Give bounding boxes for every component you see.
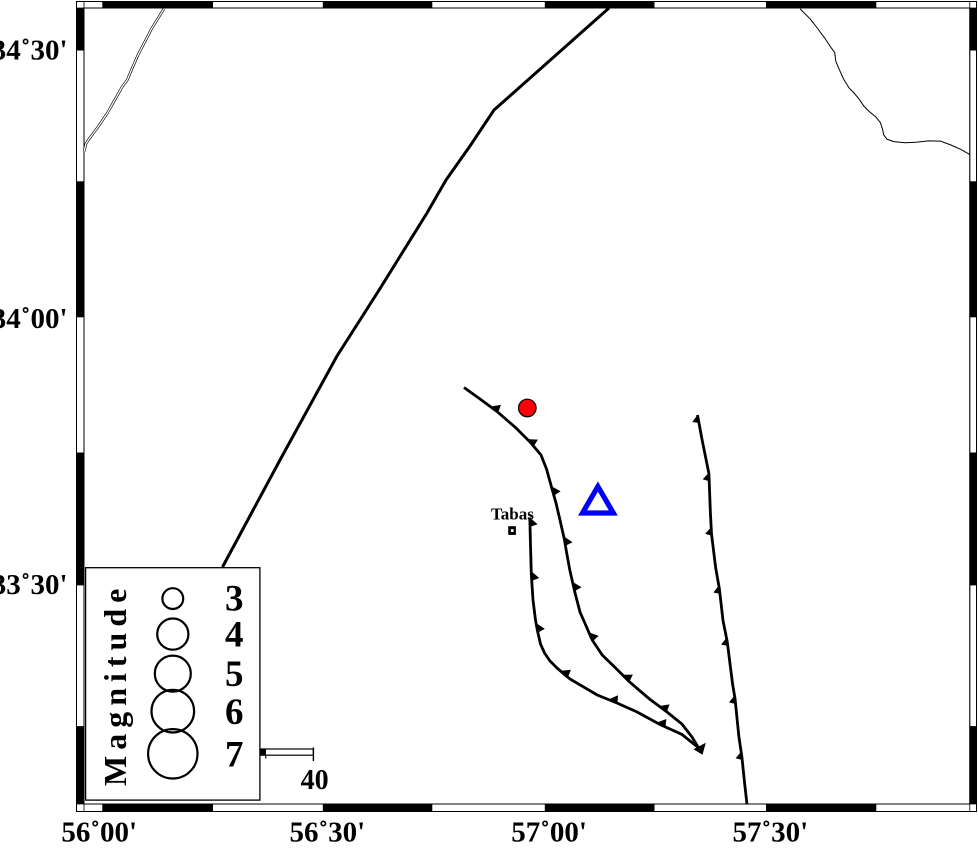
svg-text:7: 7 [225,734,244,775]
svg-text:56˚30': 56˚30' [290,817,366,844]
svg-text:57˚00': 57˚00' [511,817,587,844]
svg-text:33˚30': 33˚30' [0,569,68,601]
svg-text:4: 4 [225,615,244,656]
svg-text:5: 5 [225,654,244,695]
svg-text:34˚00': 34˚00' [0,303,68,335]
svg-text:34˚30': 34˚30' [0,35,68,67]
svg-text:57˚30': 57˚30' [733,817,809,844]
svg-text:56˚00': 56˚00' [61,817,137,844]
svg-text:6: 6 [225,692,244,733]
svg-text:3: 3 [225,578,244,619]
svg-text:Tabas: Tabas [491,504,534,523]
svg-text:40: 40 [301,765,329,796]
svg-text:Magnitude: Magnitude [97,583,133,786]
